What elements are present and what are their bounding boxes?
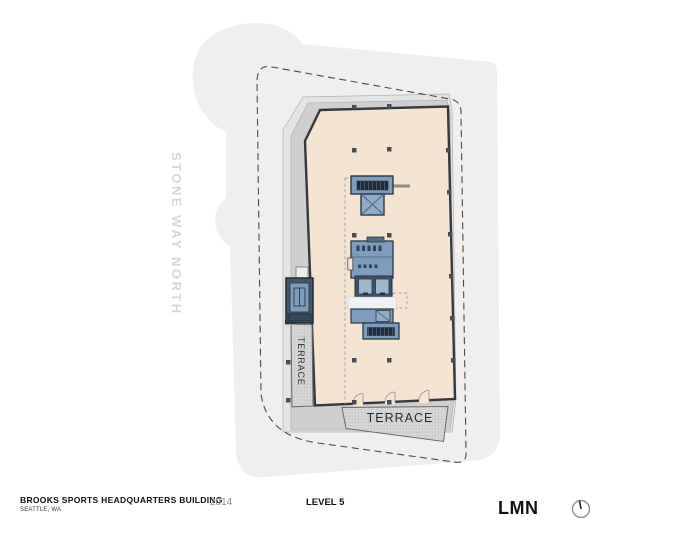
firm-logo: LMN (498, 498, 539, 519)
drawing-sheet: STONE WAY NORTH TERRACE TERRACE BROOKS S… (0, 0, 700, 540)
terrace-west-label: TERRACE (296, 337, 306, 386)
street-label: STONE WAY NORTH (169, 152, 184, 316)
floor-plan-drawing (0, 0, 700, 540)
terrace-south-label: TERRACE (352, 411, 448, 425)
stair-south (363, 323, 399, 339)
project-year: 2014 (210, 497, 232, 508)
project-location: SEATTLE, WA (20, 507, 61, 513)
elevator-bank (355, 276, 392, 297)
core-corridor (348, 297, 396, 309)
north-arrow-icon (566, 495, 596, 525)
sheet-title: LEVEL 5 (306, 497, 344, 508)
project-title: BROOKS SPORTS HEADQUARTERS BUILDING (20, 495, 223, 505)
